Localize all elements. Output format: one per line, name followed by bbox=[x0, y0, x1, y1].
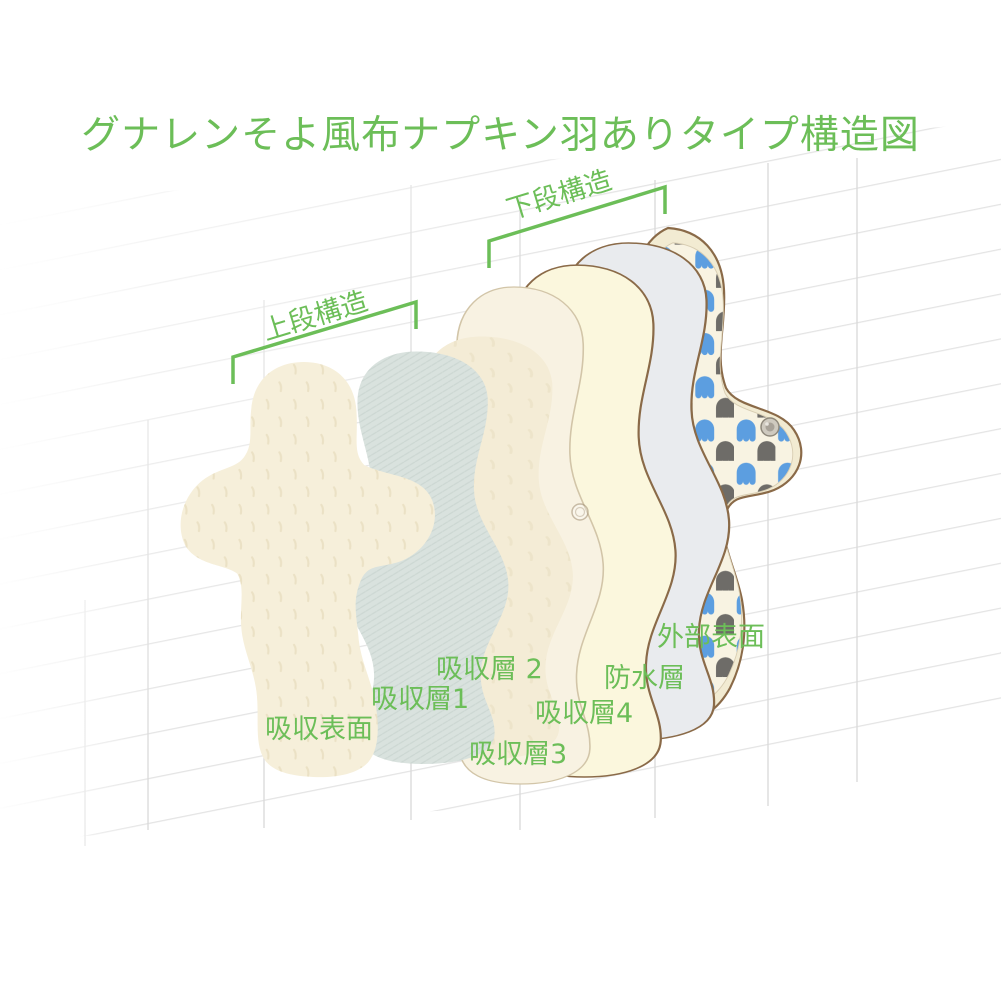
metal-snap-button bbox=[761, 418, 779, 436]
label-absorbent-1: 吸収層1 bbox=[371, 684, 469, 715]
label-absorbent-2: 吸収層 2 bbox=[436, 654, 543, 685]
label-absorbent-4: 吸収層4 bbox=[535, 698, 633, 729]
label-absorbent-3: 吸収層3 bbox=[469, 739, 567, 770]
page-title: グナレンそよ風布ナプキン羽ありタイプ構造図 bbox=[0, 104, 1001, 160]
diagram-page: 上段構造 下段構造 吸収表面 吸収層1 吸収層 2 吸収層3 吸収層4 防水層 … bbox=[0, 0, 1001, 1001]
translucent-snap-button bbox=[572, 504, 588, 520]
label-waterproof: 防水層 bbox=[604, 663, 685, 694]
label-absorbent-surface: 吸収表面 bbox=[265, 714, 373, 745]
label-outer-surface: 外部表面 bbox=[657, 622, 765, 653]
